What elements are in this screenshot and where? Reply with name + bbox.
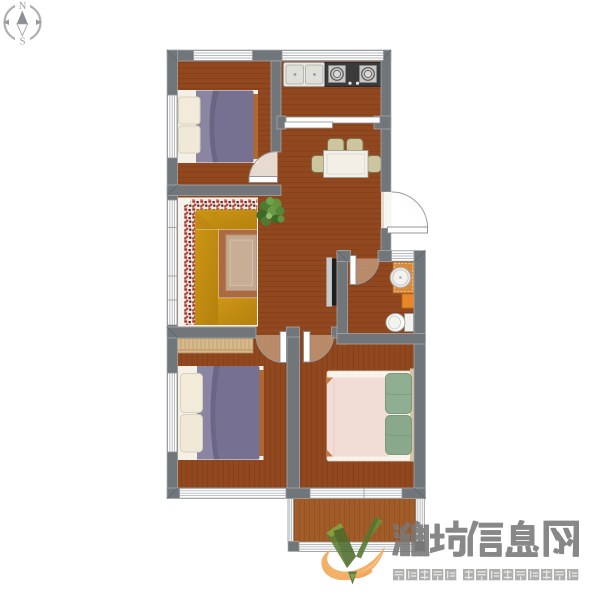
svg-text:N: N: [19, 1, 27, 12]
svg-text:S: S: [20, 37, 26, 48]
